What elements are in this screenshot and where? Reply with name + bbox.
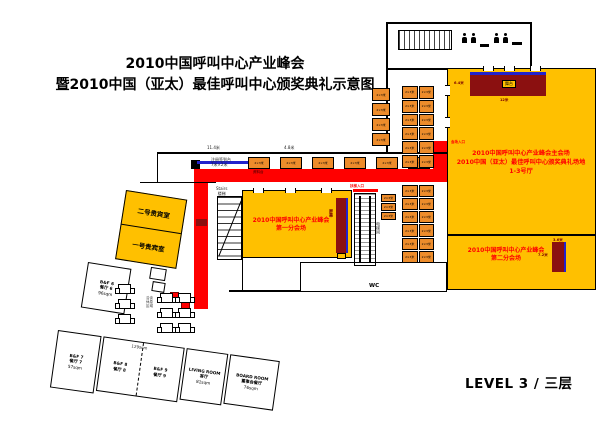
stairs — [217, 196, 242, 260]
hall1-line2: 第一分会场 — [247, 225, 335, 233]
dimension-label-a: 11.4米 — [207, 145, 220, 150]
booth-cell: 2×3米 — [419, 185, 435, 197]
booth-cell: 2×3米 — [402, 141, 418, 154]
wc-label: WC — [369, 283, 379, 289]
main-hall: 舞台 6.4米 12米 会场入口 2010中国呼叫中心产业峰会主会场 2010中… — [447, 68, 596, 235]
title-line1: 2010中国呼叫中心产业峰会 — [55, 54, 375, 75]
booth-cell: 2×3米 — [402, 211, 418, 223]
booth-cell: 2×3米 — [280, 157, 302, 169]
booth-cell: 2×3米 — [419, 251, 435, 263]
booth-cell: 2×3米 — [372, 133, 390, 146]
booth-cell: 2×3米 — [248, 157, 270, 169]
dimension-label-b: 4.8米 — [284, 145, 294, 150]
route-segment-horizontal — [205, 169, 447, 182]
breakout-hall-1: 2010中国呼叫中心产业峰会 第一分会场 屏幕 — [242, 190, 352, 258]
booth-cell: 2×3米 — [419, 114, 435, 127]
booth-cell: 2×3米 — [419, 100, 435, 113]
lounge-table — [178, 308, 191, 318]
hall1-screen-label: 屏幕 — [329, 209, 333, 217]
lounge-table — [118, 299, 131, 309]
booth-cell: 2×3米 — [402, 238, 418, 250]
booth-cell: 2×3米 — [419, 211, 435, 223]
title-line2: 暨2010中国（亚太）最佳呼叫中心颁奖典礼示意图 — [55, 75, 375, 96]
main-hall-title: 2010中国呼叫中心产业峰会主会场 2010中国（亚太）最佳呼叫中心颁奖典礼场地… — [451, 149, 591, 176]
booth-cell: 2×3米 — [419, 155, 435, 168]
door-notch — [530, 66, 541, 71]
person-icon — [503, 33, 508, 43]
counter-mark — [480, 44, 489, 47]
booth-group-grid-c: 2×3米2×3米2×3米2×3米2×3米2×3米2×3米2×3米2×3米2×3米… — [402, 185, 434, 263]
hall1-screen — [336, 198, 348, 253]
booth-cell: 2×3米 — [419, 238, 435, 250]
elevator-label: 电梯间 — [376, 222, 380, 234]
service-block — [386, 22, 532, 70]
door-notch — [253, 188, 264, 193]
escalator-entry-label: 扶梯入口 — [350, 184, 364, 188]
small-room — [149, 267, 167, 281]
level-label: LEVEL 3 / 三层 — [465, 372, 573, 392]
route-segment-to-main-hall — [433, 141, 447, 182]
booth-cell: 2×3米 — [419, 224, 435, 236]
wall-segment — [229, 290, 301, 292]
escalator-icon — [398, 30, 452, 50]
booth-cell: 2×3米 — [402, 100, 418, 113]
room-bf7: B&F 7 餐厅 7 57sqm — [50, 330, 102, 394]
lounge-table — [160, 308, 173, 318]
bf6-area: 96sqm — [98, 290, 113, 298]
lounge-table — [118, 314, 131, 324]
lounge-table — [160, 293, 173, 303]
booth-cell: 2×3米 — [381, 212, 396, 220]
hall2-screen-height: 7.2米 — [538, 253, 548, 257]
stairs-label: Stairs 楼梯 — [216, 186, 227, 196]
restroom-icon — [494, 33, 508, 43]
materials-desk-label: 资料台 — [253, 170, 264, 174]
booth-cell: 2×3米 — [344, 157, 366, 169]
main-hall-line1: 2010中国呼叫中心产业峰会主会场 — [451, 149, 591, 158]
hall1-title: 2010中国呼叫中心产业峰会 第一分会场 — [247, 217, 335, 233]
registration-line2: 7米×2米 — [211, 162, 231, 167]
bf7-area: 57sqm — [68, 364, 83, 372]
lounge-table — [160, 323, 173, 333]
dining-wing: B&F 7 餐厅 7 57sqm 129sqm B&F 8 餐厅 8 B&F 9… — [50, 330, 282, 421]
door-notch — [445, 85, 450, 96]
booth-cell: 2×3米 — [402, 127, 418, 140]
hall1-line1: 2010中国呼叫中心产业峰会 — [247, 217, 335, 225]
floor-plan-canvas: 2010中国呼叫中心产业峰会 暨2010中国（亚太）最佳呼叫中心颁奖典礼示意图 … — [0, 0, 600, 424]
booth-cell: 2×3米 — [372, 88, 390, 101]
person-icon — [494, 33, 499, 43]
booth-group-col-d: 2×3米2×3米2×3米 — [381, 194, 396, 220]
booth-cell: 2×3米 — [402, 86, 418, 99]
door-notch — [445, 117, 450, 128]
room-bf8-bf9: 129sqm B&F 8 餐厅 8 B&F 9 餐厅 9 — [96, 336, 185, 402]
person-icon — [471, 33, 476, 43]
booth-cell: 2×3米 — [402, 224, 418, 236]
escalator-shaft — [354, 193, 376, 266]
hall-entrance-label: 会场入口 — [451, 140, 465, 144]
person-icon — [462, 33, 467, 43]
booth-cell: 2×3米 — [419, 198, 435, 210]
booth-cell: 2×3米 — [372, 103, 390, 116]
door-notch — [504, 66, 515, 71]
lounge-table — [178, 323, 191, 333]
booth-cell: 2×3米 — [402, 251, 418, 263]
booth-cell: 2×3米 — [372, 118, 390, 131]
room-board: BOARD ROOM 董事会餐厅 76sqm — [223, 354, 279, 410]
checkin-desk — [196, 219, 207, 226]
lounge-line3: 区域 — [146, 304, 153, 308]
main-hall-line3: 1-3号厅 — [451, 167, 591, 176]
breakout-hall-2: 2010中国呼叫中心产业峰会 第二分会场 3.6米 7.2米 — [447, 235, 596, 290]
wall-segment — [242, 258, 243, 291]
lounge-table — [178, 293, 191, 303]
booth-cell: 2×3米 — [402, 114, 418, 127]
lounge-label: 洽谈 休息 区域 — [146, 296, 153, 308]
booth-cell: 2×3米 — [419, 86, 435, 99]
wall-segment — [140, 182, 216, 183]
route-segment-vertical — [194, 169, 208, 309]
stage-width-dim: 12米 — [500, 98, 508, 102]
stage-label: 舞台 — [502, 80, 516, 88]
booth-cell: 2×3米 — [419, 127, 435, 140]
room-living: LIVING ROOM 客厅 81sqm — [179, 348, 228, 405]
lounge-table — [118, 284, 131, 294]
small-room — [151, 281, 165, 293]
door-notch — [285, 188, 296, 193]
booth-group-col-a: 2×3米2×3米2×3米2×3米 — [372, 88, 390, 146]
stage-side-dim: 6.4米 — [454, 81, 464, 85]
main-stage: 舞台 — [470, 75, 546, 96]
registration-desk-label: 注册签到台 7米×2米 — [211, 157, 231, 167]
door-notch — [483, 66, 494, 71]
door-notch — [321, 188, 332, 193]
room-bf9: B&F 9 餐厅 9 — [137, 343, 184, 401]
booth-cell: 2×3米 — [402, 185, 418, 197]
booth-cell: 2×3米 — [402, 155, 418, 168]
main-hall-line2: 2010中国（亚太）最佳呼叫中心颁奖典礼场地 — [451, 158, 591, 167]
control-chip — [337, 253, 346, 259]
booth-cell: 2×3米 — [376, 157, 398, 169]
booth-cell: 2×3米 — [381, 203, 396, 211]
page-title: 2010中国呼叫中心产业峰会 暨2010中国（亚太）最佳呼叫中心颁奖典礼示意图 — [55, 54, 375, 96]
booth-group-grid-b: 2×3米2×3米2×3米2×3米2×3米2×3米2×3米2×3米2×3米2×3米… — [402, 86, 434, 168]
booth-cell: 2×3米 — [381, 194, 396, 202]
booth-cell: 2×3米 — [419, 141, 435, 154]
counter-mark — [512, 42, 522, 45]
escalator-entry-mark — [353, 189, 378, 192]
wall-segment — [157, 152, 158, 182]
booth-cell: 2×3米 — [312, 157, 334, 169]
restroom-icon — [462, 33, 476, 43]
booth-cell: 2×3米 — [402, 198, 418, 210]
hall2-screen — [552, 242, 566, 272]
wc-area: WC — [300, 262, 447, 292]
vip-rooms: 二号贵宾室 一号贵宾室 — [115, 190, 187, 269]
